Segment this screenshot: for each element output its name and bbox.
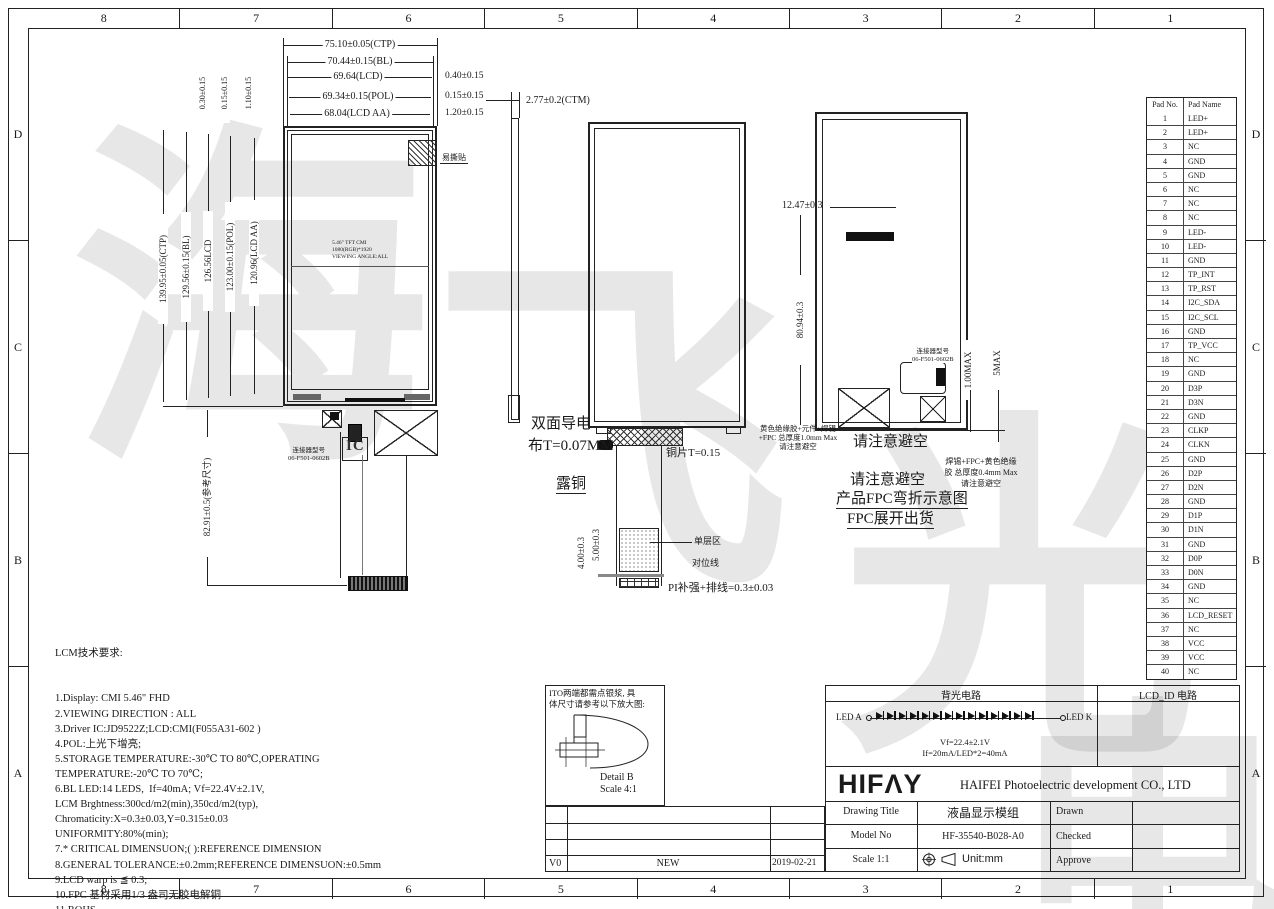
pad-name-cell: TP_INT (1184, 268, 1236, 281)
pad-name-cell: NC (1184, 140, 1236, 153)
led-diode-icon (899, 711, 908, 720)
note-item: TEMPERATURE:-20℃ TO 70℃; (55, 767, 405, 782)
conductive-cloth-label: 布T=0.07MM (528, 434, 614, 455)
extension-line (437, 38, 438, 126)
connector-type-line: 06-F501-0602B (288, 455, 330, 463)
side-view-outline (511, 118, 519, 420)
pad-name-cell: LED+ (1184, 126, 1236, 139)
ic-label: IC (346, 438, 365, 455)
note-line: +FPC 总厚度1.0mm Max (756, 433, 840, 442)
align-line (598, 574, 664, 577)
dim-label: 82.91±0.5(参考尺寸) (202, 437, 212, 557)
pad-name-cell: LED- (1184, 240, 1236, 253)
unit-label: Unit:mm (962, 853, 1003, 865)
pad-name-cell: D1N (1184, 523, 1236, 536)
ito-note: ITO两端都需点银浆, 具 体尺寸请参考以下放大图: (549, 688, 645, 710)
detail-scale-label: Scale 4:1 (598, 784, 639, 795)
pad-name-cell: GND (1184, 580, 1236, 593)
table-row: 26 D2P (1147, 466, 1236, 480)
pad-no-header: Pad No. (1147, 98, 1184, 112)
pad-no-cell: 15 (1147, 311, 1184, 324)
pad-name-cell: NC (1184, 665, 1236, 678)
led-diode-icon (991, 711, 1000, 720)
projection-symbol-icon (922, 852, 958, 867)
pad-name-cell: GND (1184, 453, 1236, 466)
pad-no-cell: 18 (1147, 353, 1184, 366)
note-line: 黄色绝缘胶+元件+焊锡 (756, 424, 840, 433)
leader-line (650, 542, 692, 543)
led-chain (874, 711, 1035, 720)
table-row: 6 NC (1147, 182, 1236, 196)
table-row: 5 GND (1147, 168, 1236, 182)
pad-no-cell: 28 (1147, 495, 1184, 508)
field-label: Model No (851, 830, 892, 841)
pad-name-cell: GND (1184, 495, 1236, 508)
note-line: 请注意避空 (756, 442, 840, 451)
table-row: 18 NC (1147, 352, 1236, 366)
revision-desc: NEW (657, 858, 680, 869)
fpc-connector (348, 576, 408, 591)
component-box (920, 396, 946, 422)
pad-no-cell: 20 (1147, 382, 1184, 395)
extension-line (519, 92, 520, 118)
extension-line (970, 390, 971, 432)
connector-type-line: 连接器型号 (912, 348, 954, 356)
table-row: 34 GND (1147, 579, 1236, 593)
sign-label: Approve (1056, 855, 1091, 866)
panel-spec-line: VIEWING ANGLE:ALL (332, 254, 388, 261)
model-no-value: HF-35540-B028-A0 (942, 831, 1024, 842)
company-name: HAIFEI Photoelectric development CO., LT… (960, 778, 1191, 793)
note-item: 2.VIEWING DIRECTION : ALL (55, 707, 405, 722)
pad-name-cell: CLKP (1184, 424, 1236, 437)
table-row: 28 GND (1147, 494, 1236, 508)
dim-label: 12.47±0.3 (780, 200, 825, 211)
table-row: 12 TP_INT (1147, 267, 1236, 281)
pad-name-cell: GND (1184, 410, 1236, 423)
lcd-id-header: LCD_ID 电路 (1139, 687, 1197, 702)
table-row: 2 LED+ (1147, 125, 1236, 139)
align-line-label: 对位线 (690, 558, 721, 569)
panel-spec-text: 5.46" TFT CMI 1080(RGB)*1920 VIEWING ANG… (332, 240, 388, 261)
zone-letters-left: DCBA (8, 28, 28, 879)
table-row: 38 VCC (1147, 636, 1236, 650)
table-row: 36 LCD_RESET (1147, 608, 1236, 622)
fold-note: 产品FPC弯折示意图 (836, 487, 968, 509)
pad-no-cell: 25 (1147, 453, 1184, 466)
pad-name-cell: D2P (1184, 467, 1236, 480)
pad-no-cell: 33 (1147, 566, 1184, 579)
pad-no-cell: 16 (1147, 325, 1184, 338)
middle-view-tab (726, 426, 741, 434)
dim-label: 80.94±0.3 (795, 275, 805, 365)
extension-line (511, 92, 512, 118)
table-line (545, 823, 825, 824)
pad-name-cell: GND (1184, 254, 1236, 267)
fpc-strip-outline (616, 446, 617, 586)
dim-label: 139.95±0.05(CTP) (158, 214, 168, 324)
dim-label: 69.64(LCD) (331, 71, 384, 82)
pad-no-cell: 40 (1147, 665, 1184, 678)
table-line (770, 806, 771, 872)
fold-note: 请注意避空 (850, 468, 925, 489)
pad-no-cell: 30 (1147, 523, 1184, 536)
pad-name-cell: TP_RST (1184, 282, 1236, 295)
zone-letters-right: DCBA (1246, 28, 1266, 879)
table-line (825, 801, 1240, 802)
note-item: 4.POL:上光下增亮; (55, 737, 405, 752)
pad-name-cell: D0N (1184, 566, 1236, 579)
table-row: 9 LED- (1147, 225, 1236, 239)
pad-name-cell: LED+ (1184, 112, 1236, 125)
pad-name-cell: CLKN (1184, 438, 1236, 451)
pad-no-cell: 27 (1147, 481, 1184, 494)
pad-name-cell: VCC (1184, 651, 1236, 664)
pad-no-cell: 13 (1147, 282, 1184, 295)
pad-name-cell: NC (1184, 623, 1236, 636)
led-diode-icon (887, 711, 896, 720)
note-item: UNIFORMITY:80%(min); (55, 827, 405, 842)
table-row: 40 NC (1147, 664, 1236, 678)
table-row: 1 LED+ (1147, 112, 1236, 125)
pad-no-cell: 21 (1147, 396, 1184, 409)
table-line (545, 839, 825, 840)
single-layer-label: 单层区 (692, 536, 723, 547)
pad-table: Pad No. Pad Name 1 LED+ 2 LED+ 3 NC 4 GN… (1146, 97, 1237, 680)
pad-no-cell: 6 (1147, 183, 1184, 196)
dim-label: 1.20±0.15 (443, 108, 485, 119)
dim-label: 1.10±0.15 (244, 63, 254, 123)
dim-label: 5.00±0.3 (591, 517, 601, 573)
note-item: 5.STORAGE TEMPERATURE:-30℃ TO 80℃,OPERAT… (55, 752, 405, 767)
pad-no-cell: 22 (1147, 410, 1184, 423)
extension-line (163, 406, 283, 407)
revision-date: 2019-02-21 (772, 858, 816, 868)
pad-no-cell: 29 (1147, 509, 1184, 522)
pad-name-cell: GND (1184, 169, 1236, 182)
table-row: 8 NC (1147, 210, 1236, 224)
pad-name-cell: LCD_RESET (1184, 609, 1236, 622)
bottom-contact-bar (345, 398, 405, 402)
led-diode-icon (979, 711, 988, 720)
table-row: 29 D1P (1147, 508, 1236, 522)
table-line (825, 848, 1240, 849)
pad-no-cell: 35 (1147, 594, 1184, 607)
pad-name-cell: TP_VCC (1184, 339, 1236, 352)
led-if-label: If=20mA/LED*2=40mA (922, 748, 1007, 758)
detail-b-drawing (552, 712, 658, 774)
pad-no-cell: 23 (1147, 424, 1184, 437)
table-row: 20 D3P (1147, 381, 1236, 395)
front-view-aa-outline (291, 134, 429, 390)
conductive-cloth-strip (607, 428, 683, 446)
tear-sticker-label: 易撕贴 (440, 152, 468, 164)
table-line (545, 855, 825, 856)
led-diode-icon (1025, 711, 1034, 720)
backlight-header: 背光电路 (941, 687, 981, 702)
table-line (917, 801, 918, 872)
fpc-strip-outline (661, 446, 662, 586)
note-item: Chromaticity:X=0.3±0.03,Y=0.315±0.03 (55, 812, 405, 827)
dim-label: 4.00±0.3 (576, 525, 586, 581)
pad-no-cell: 31 (1147, 538, 1184, 551)
pad-no-cell: 32 (1147, 552, 1184, 565)
dim-label: 0.30±0.15 (198, 63, 208, 123)
led-diode-icon (968, 711, 977, 720)
table-row: 16 GND (1147, 324, 1236, 338)
notes-title: LCM技术要求: (55, 646, 405, 661)
drawing-title-value: 液晶显示模组 (947, 804, 1019, 821)
table-row: 3 NC (1147, 139, 1236, 153)
pad-name-cell: GND (1184, 325, 1236, 338)
pad-no-cell: 8 (1147, 211, 1184, 224)
dimension-line (830, 207, 896, 208)
extension-line (998, 390, 999, 442)
pad-no-cell: 4 (1147, 155, 1184, 168)
table-row: 11 GND (1147, 253, 1236, 267)
pad-name-cell: GND (1184, 367, 1236, 380)
pad-no-cell: 39 (1147, 651, 1184, 664)
pad-name-cell: NC (1184, 594, 1236, 607)
pad-name-cell: D3P (1184, 382, 1236, 395)
table-row: 32 D0P (1147, 551, 1236, 565)
led-diode-icon (910, 711, 919, 720)
table-row: 27 D2N (1147, 480, 1236, 494)
stiffener-box (838, 388, 890, 428)
pad-table-header: Pad No. Pad Name (1147, 98, 1236, 112)
pad-no-cell: 36 (1147, 609, 1184, 622)
extension-line (433, 56, 434, 126)
pad-name-cell: D3N (1184, 396, 1236, 409)
bare-copper-label: 露铜 (556, 472, 586, 494)
connector-type-line: 连接器型号 (288, 447, 330, 455)
note-yellow-tape: 黄色绝缘胶+元件+焊锡 +FPC 总厚度1.0mm Max 请注意避空 (756, 424, 840, 451)
connector-type-label: 连接器型号 06-F501-0602B (912, 348, 954, 363)
pad-no-cell: 9 (1147, 226, 1184, 239)
pad-name-cell: NC (1184, 211, 1236, 224)
pad-name-cell: VCC (1184, 637, 1236, 650)
dim-label: 129.56±0.15(BL) (181, 212, 191, 322)
pad-name-cell: NC (1184, 183, 1236, 196)
table-row: 37 NC (1147, 622, 1236, 636)
led-diode-icon (945, 711, 954, 720)
dim-label: 0.15±0.15 (443, 91, 485, 102)
extension-line (283, 38, 284, 126)
table-row: 23 CLKP (1147, 423, 1236, 437)
pad-no-cell: 2 (1147, 126, 1184, 139)
extension-line (207, 585, 347, 586)
table-row: 24 CLKN (1147, 437, 1236, 451)
dim-label: 0.15±0.15 (220, 63, 230, 123)
pad-name-cell: I2C_SCL (1184, 311, 1236, 324)
table-row: 22 GND (1147, 409, 1236, 423)
note-item: 7.* CRITICAL DIMENSUON;( ):REFERENCE DIM… (55, 842, 405, 857)
field-label: Scale 1:1 (853, 854, 890, 865)
table-row: 19 GND (1147, 366, 1236, 380)
detail-label: Detail B (598, 772, 636, 783)
table-row: 35 NC (1147, 593, 1236, 607)
single-layer-zone (619, 528, 659, 572)
led-diode-icon (956, 711, 965, 720)
pad-no-cell: 19 (1147, 367, 1184, 380)
pad-no-cell: 1 (1147, 112, 1184, 125)
dim-label: 2.77±0.2(CTM) (524, 95, 592, 106)
pad-name-cell: D2N (1184, 481, 1236, 494)
table-line (825, 824, 1240, 825)
pad-name-cell: GND (1184, 538, 1236, 551)
panel-spec-line: 5.46" TFT CMI (332, 240, 388, 247)
dim-label: 70.44±0.15(BL) (326, 56, 395, 67)
dim-label: 68.04(LCD AA) (322, 108, 392, 119)
table-row: 21 D3N (1147, 395, 1236, 409)
fpc-centerline (362, 455, 363, 575)
connector-type-label: 连接器型号 06-F501-0602B (288, 447, 330, 462)
dim-label: 126.56LCD (203, 211, 213, 311)
tear-sticker-hatch (408, 140, 436, 166)
note-line: 焊锡+FPC+黄色绝缘 (938, 456, 1024, 467)
table-row: 15 I2C_SCL (1147, 310, 1236, 324)
zone-numbers-top: 87654321 (28, 8, 1246, 28)
fold-note: FPC展开出货 (847, 507, 934, 529)
fpc-outline (406, 456, 407, 578)
fpc-outline (340, 432, 341, 578)
dim-label: 5MAX (992, 338, 1002, 388)
led-diode-icon (1002, 711, 1011, 720)
pad-no-cell: 24 (1147, 438, 1184, 451)
pad-no-cell: 14 (1147, 296, 1184, 309)
dim-label: 69.34±0.15(POL) (320, 91, 395, 102)
avoid-note: 请注意避空 (853, 430, 928, 451)
led-diode-icon (876, 711, 885, 720)
pad-no-cell: 10 (1147, 240, 1184, 253)
pad-no-cell: 38 (1147, 637, 1184, 650)
table-row: 13 TP_RST (1147, 281, 1236, 295)
dim-label: 123.00±0.15(POL) (225, 202, 235, 312)
led-diode-icon (933, 711, 942, 720)
pad-name-header: Pad Name (1184, 98, 1236, 112)
note-item: 6.BL LED:14 LEDS, If=40mA; Vf=22.4V±2.1V… (55, 782, 405, 797)
table-line (567, 806, 568, 872)
pad-name-cell: I2C_SDA (1184, 296, 1236, 309)
pad-name-cell: LED- (1184, 226, 1236, 239)
note-item: 8.GENERAL TOLERANCE:±0.2mm;REFERENCE DIM… (55, 858, 405, 873)
stiffener-box (374, 410, 438, 456)
led-vf-label: Vf=22.4±2.1V (940, 737, 990, 747)
pad-no-cell: 37 (1147, 623, 1184, 636)
note-line: 胶 总厚度0.4mm Max (938, 467, 1024, 478)
back-contact-strip (846, 232, 894, 241)
pad-no-cell: 12 (1147, 268, 1184, 281)
field-label: Drawing Title (843, 806, 899, 817)
bottom-shield-strip (404, 394, 430, 400)
table-row: 4 GND (1147, 154, 1236, 168)
dim-label: 1.00MAX (963, 340, 973, 400)
table-row: 39 VCC (1147, 650, 1236, 664)
ito-note-line: ITO两端都需点银浆, 具 (549, 688, 645, 699)
panel-spec-line: 1080(RGB)*1920 (332, 247, 388, 254)
table-row: 25 GND (1147, 452, 1236, 466)
pad-name-cell: D0P (1184, 552, 1236, 565)
pi-note-label: PI补强+排线=0.3±0.03 (666, 583, 775, 594)
dim-label: 0.40±0.15 (443, 71, 485, 82)
extension-line (287, 56, 288, 126)
note-item: LCM Brghtness:300cd/m2(min),350cd/m2(typ… (55, 797, 405, 812)
pad-name-cell: GND (1184, 155, 1236, 168)
table-row: 17 TP_VCC (1147, 338, 1236, 352)
pad-no-cell: 3 (1147, 140, 1184, 153)
table-row: 10 LED- (1147, 239, 1236, 253)
copper-sheet-label: 铜片T=0.15 (664, 448, 722, 459)
ito-note-line: 体尺寸请参考以下放大图: (549, 699, 645, 710)
side-view-foot (508, 395, 520, 423)
engineering-drawing-sheet: 海 飞 光 电 87654321 87654321 DCBA DCBA 75.1… (0, 0, 1274, 909)
table-row: 7 NC (1147, 196, 1236, 210)
panel-centerline (291, 266, 429, 267)
note-solder-tape: 焊锡+FPC+黄色绝缘 胶 总厚度0.4mm Max 请注意避空 (938, 456, 1024, 489)
table-row: 30 D1N (1147, 522, 1236, 536)
dimension-line (486, 100, 520, 101)
company-logo: HIFΛY (838, 769, 923, 800)
component-chip (330, 412, 339, 420)
note-item: 11.ROHS (55, 903, 405, 909)
led-diode-icon (922, 711, 931, 720)
pad-no-cell: 17 (1147, 339, 1184, 352)
pad-no-cell: 34 (1147, 580, 1184, 593)
table-row: 14 I2C_SDA (1147, 295, 1236, 309)
pad-no-cell: 5 (1147, 169, 1184, 182)
pad-name-cell: NC (1184, 353, 1236, 366)
note-item: 10.FPC 基材采用1/3 盎司无胶电解铜 (55, 888, 405, 903)
table-line (1050, 801, 1051, 872)
note-item: 1.Display: CMI 5.46" FHD (55, 691, 405, 706)
pad-no-cell: 7 (1147, 197, 1184, 210)
note-item: 3.Driver IC:JD9522Z;LCD:CMI(F055A31-602 … (55, 722, 405, 737)
led-diode-icon (1014, 711, 1023, 720)
led-anode-label: LED A (836, 712, 862, 722)
pad-name-cell: D1P (1184, 509, 1236, 522)
table-line (1097, 685, 1098, 766)
revision-code: V0 (549, 858, 561, 869)
pad-no-cell: 26 (1147, 467, 1184, 480)
pad-name-cell: NC (1184, 197, 1236, 210)
middle-view-inner (594, 128, 740, 422)
table-row: 33 D0N (1147, 565, 1236, 579)
sign-label: Checked (1056, 831, 1091, 842)
notes-list: 1.Display: CMI 5.46" FHD2.VIEWING DIRECT… (55, 691, 405, 909)
component-chip (936, 368, 945, 386)
note-item: 9.LCD warp is ≦ 0.3; (55, 873, 405, 888)
pad-table-body: 1 LED+ 2 LED+ 3 NC 4 GND 5 GND 6 NC 7 NC (1147, 112, 1236, 679)
bottom-shield-strip (293, 394, 321, 400)
led-cathode-label: LED K (1066, 712, 1092, 722)
dim-label: 120.96(LCD AA) (249, 200, 259, 306)
table-line (1132, 801, 1133, 872)
table-line (825, 766, 1240, 767)
pi-stiffener-strip (619, 578, 659, 588)
lcm-notes: LCM技术要求: 1.Display: CMI 5.46" FHD2.VIEWI… (55, 616, 405, 909)
conductive-cloth-label: 双面导电 (531, 412, 591, 433)
connector-type-line: 06-F501-0602B (912, 356, 954, 364)
sign-label: Drawn (1056, 806, 1083, 817)
table-row: 31 GND (1147, 537, 1236, 551)
pad-no-cell: 11 (1147, 254, 1184, 267)
dim-label: 75.10±0.05(CTP) (323, 39, 398, 50)
